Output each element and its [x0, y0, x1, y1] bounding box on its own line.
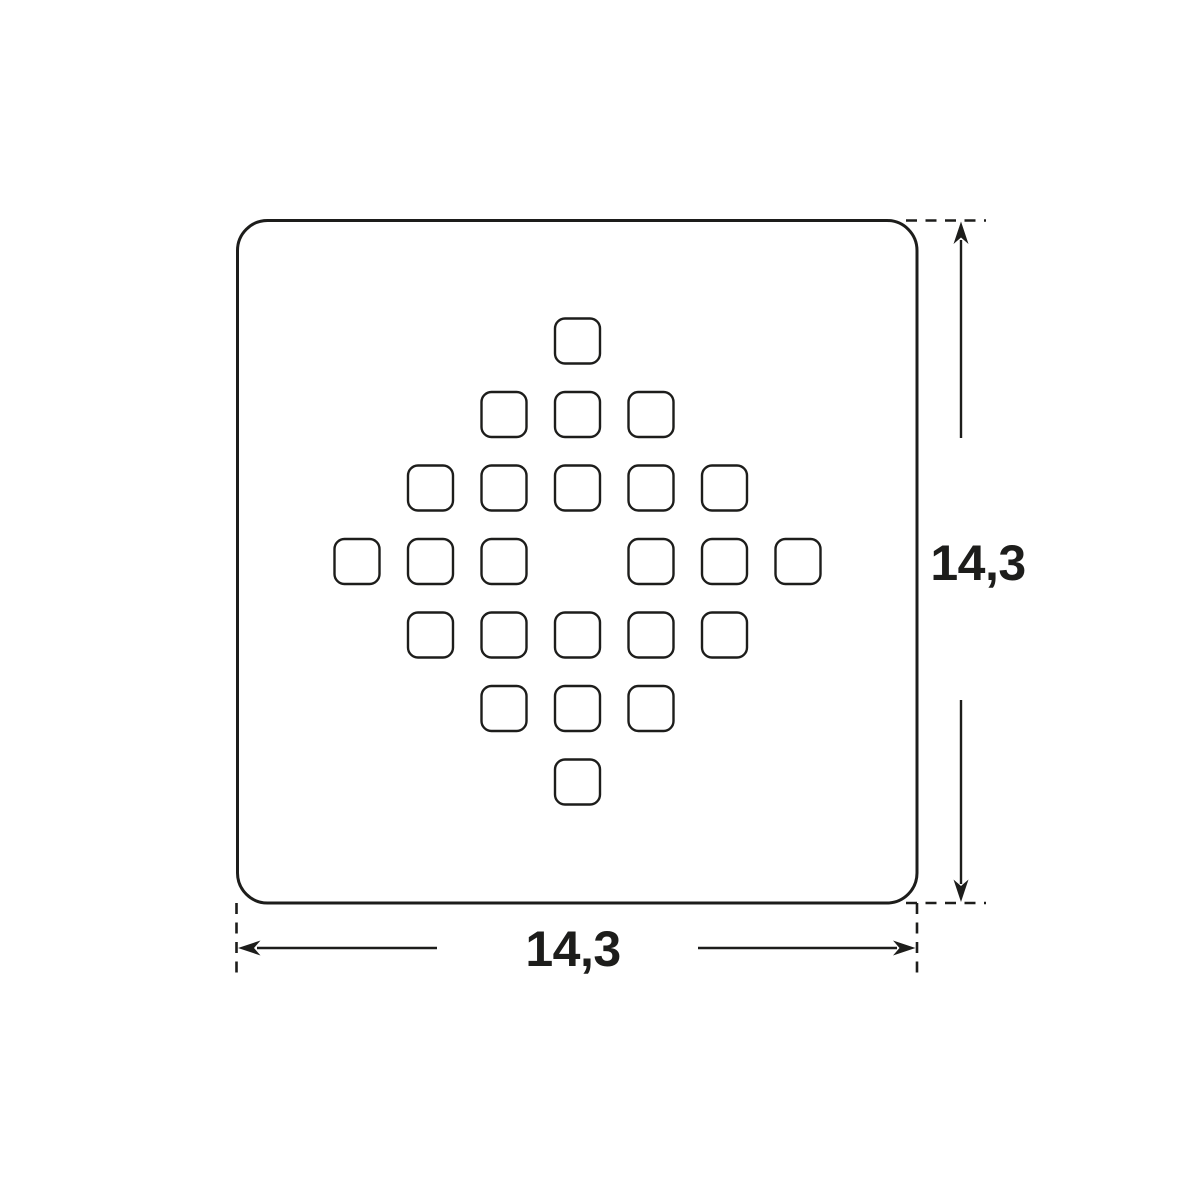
- hole: [408, 539, 453, 584]
- width-dimension-label: 14,3: [525, 921, 620, 977]
- hole: [702, 539, 747, 584]
- hole: [335, 539, 380, 584]
- hole: [482, 613, 527, 658]
- hole: [702, 613, 747, 658]
- width-dimension: 14,3: [237, 903, 918, 979]
- hole: [555, 686, 600, 731]
- height-dimension: 14,3: [906, 221, 1026, 904]
- hole: [408, 466, 453, 511]
- hole: [629, 539, 674, 584]
- hole: [555, 466, 600, 511]
- hole: [482, 392, 527, 437]
- hole: [408, 613, 453, 658]
- hole: [555, 760, 600, 805]
- hole-pattern: [335, 319, 821, 805]
- hole: [482, 539, 527, 584]
- hole: [555, 392, 600, 437]
- hole: [702, 466, 747, 511]
- hole: [555, 319, 600, 364]
- grate-outline: [238, 221, 918, 904]
- hole: [629, 613, 674, 658]
- height-dimension-label: 14,3: [930, 535, 1025, 591]
- technical-drawing-canvas: 14,3 14,3: [0, 0, 1200, 1200]
- hole: [629, 686, 674, 731]
- hole: [482, 686, 527, 731]
- drain-grate-drawing: 14,3 14,3: [0, 0, 1200, 1200]
- hole: [629, 466, 674, 511]
- hole: [555, 613, 600, 658]
- hole: [482, 466, 527, 511]
- hole: [776, 539, 821, 584]
- hole: [629, 392, 674, 437]
